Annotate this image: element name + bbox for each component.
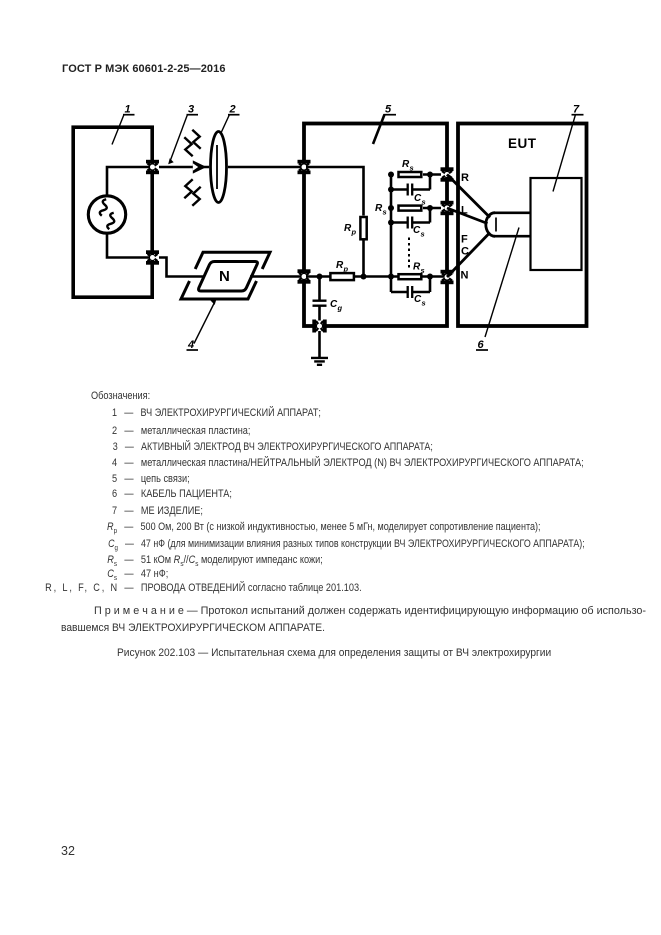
svg-text:3: 3 (188, 104, 194, 116)
svg-text:F: F (461, 234, 468, 246)
svg-text:R: R (461, 172, 469, 184)
svg-text:N: N (461, 270, 469, 282)
svg-text:s: s (421, 230, 425, 239)
svg-text:s: s (383, 208, 387, 217)
svg-text:N: N (219, 268, 230, 285)
svg-text:7: 7 (573, 104, 580, 116)
svg-text:5: 5 (385, 104, 392, 116)
svg-text:s: s (410, 164, 414, 173)
svg-text:s: s (421, 266, 425, 275)
svg-text:1: 1 (125, 104, 131, 116)
svg-text:EUT: EUT (508, 136, 537, 151)
svg-text:g: g (337, 304, 343, 313)
svg-text:6: 6 (478, 339, 485, 351)
svg-text:p: p (343, 265, 349, 274)
svg-text:2: 2 (229, 104, 236, 116)
svg-text:s: s (422, 299, 426, 308)
svg-text:4: 4 (187, 339, 194, 351)
svg-text:p: p (351, 228, 357, 237)
